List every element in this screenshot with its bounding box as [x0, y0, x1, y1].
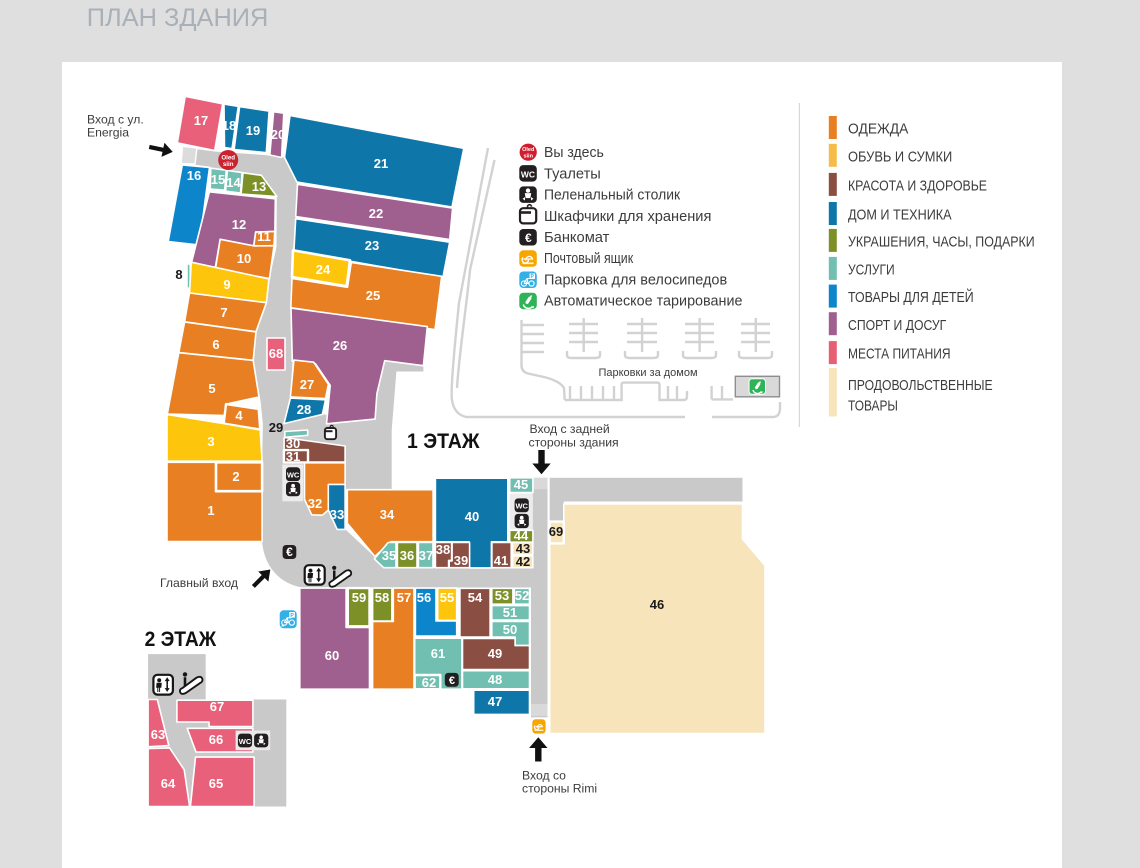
svg-text:66: 66	[209, 732, 223, 747]
svg-text:65: 65	[209, 776, 223, 791]
svg-text:34: 34	[380, 507, 395, 522]
svg-text:41: 41	[494, 553, 508, 568]
svg-text:ДОМ И ТЕХНИКА: ДОМ И ТЕХНИКА	[848, 207, 952, 224]
svg-text:52: 52	[515, 588, 529, 603]
svg-text:68: 68	[269, 346, 283, 361]
svg-text:59: 59	[352, 590, 366, 605]
svg-text:ОБУВЬ И СУМКИ: ОБУВЬ И СУМКИ	[848, 148, 952, 165]
svg-text:28: 28	[297, 402, 311, 417]
svg-text:69: 69	[549, 524, 563, 539]
svg-text:20: 20	[271, 127, 285, 142]
svg-text:€: €	[286, 545, 293, 559]
svg-text:60: 60	[325, 648, 339, 663]
svg-text:48: 48	[488, 672, 502, 687]
svg-text:УКРАШЕНИЯ, ЧАСЫ, ПОДАРКИ: УКРАШЕНИЯ, ЧАСЫ, ПОДАРКИ	[848, 234, 1035, 251]
svg-text:23: 23	[365, 238, 379, 253]
svg-text:7: 7	[220, 305, 227, 320]
svg-text:siin: siin	[523, 153, 533, 159]
svg-text:стороны Rimi: стороны Rimi	[522, 782, 597, 796]
svg-text:siin: siin	[223, 161, 234, 168]
svg-text:Шкафчики для хранения: Шкафчики для хранения	[544, 208, 711, 225]
svg-text:27: 27	[300, 377, 314, 392]
svg-text:Вы здесь: Вы здесь	[544, 144, 604, 161]
svg-text:МЕСТА ПИТАНИЯ: МЕСТА ПИТАНИЯ	[848, 346, 951, 363]
svg-text:WC: WC	[287, 471, 300, 480]
svg-text:25: 25	[366, 288, 380, 303]
svg-text:54: 54	[468, 590, 483, 605]
svg-text:Oled: Oled	[522, 147, 534, 153]
svg-text:14: 14	[226, 175, 241, 190]
svg-text:42: 42	[516, 554, 530, 569]
svg-text:18: 18	[222, 118, 236, 133]
svg-text:45: 45	[514, 477, 528, 492]
svg-text:€: €	[525, 231, 532, 245]
svg-text:33: 33	[330, 507, 344, 522]
svg-text:1 ЭТАЖ: 1 ЭТАЖ	[407, 430, 480, 453]
svg-text:6: 6	[212, 337, 219, 352]
svg-text:ТОВАРЫ ДЛЯ ДЕТЕЙ: ТОВАРЫ ДЛЯ ДЕТЕЙ	[848, 288, 974, 306]
svg-text:19: 19	[246, 123, 260, 138]
svg-text:Вход со: Вход со	[522, 769, 566, 783]
svg-text:43: 43	[516, 541, 530, 556]
svg-text:37: 37	[419, 548, 433, 563]
svg-text:Почтовый ящик: Почтовый ящик	[544, 250, 633, 267]
svg-text:17: 17	[194, 113, 208, 128]
svg-text:УСЛУГИ: УСЛУГИ	[848, 262, 895, 279]
svg-text:12: 12	[232, 217, 246, 232]
svg-text:Парковка для велосипедов: Парковка для велосипедов	[544, 271, 727, 288]
svg-text:WC: WC	[521, 170, 535, 180]
svg-text:4: 4	[235, 408, 243, 423]
svg-text:63: 63	[151, 727, 165, 742]
svg-text:55: 55	[440, 590, 454, 605]
svg-text:ТОВАРЫ: ТОВАРЫ	[848, 398, 898, 415]
svg-text:56: 56	[417, 590, 431, 605]
svg-text:2 ЭТАЖ: 2 ЭТАЖ	[145, 628, 217, 651]
svg-text:11: 11	[257, 229, 271, 244]
svg-text:31: 31	[286, 449, 300, 464]
svg-text:КРАСОТА И ЗДОРОВЬЕ: КРАСОТА И ЗДОРОВЬЕ	[848, 178, 987, 195]
svg-text:Банкомат: Банкомат	[544, 229, 610, 246]
svg-text:46: 46	[650, 597, 664, 612]
svg-text:32: 32	[308, 496, 322, 511]
svg-text:5: 5	[208, 381, 215, 396]
svg-text:35: 35	[382, 548, 396, 563]
svg-text:Пеленальный столик: Пеленальный столик	[544, 187, 681, 204]
svg-text:29: 29	[269, 420, 283, 435]
svg-text:3: 3	[207, 434, 214, 449]
svg-text:39: 39	[454, 553, 468, 568]
svg-text:15: 15	[211, 172, 225, 187]
svg-text:10: 10	[237, 251, 251, 266]
svg-text:53: 53	[495, 588, 509, 603]
svg-text:40: 40	[465, 509, 479, 524]
svg-text:16: 16	[187, 168, 201, 183]
svg-text:8: 8	[175, 267, 182, 282]
svg-text:50: 50	[503, 622, 517, 637]
svg-text:Автоматическое тарирование: Автоматическое тарирование	[544, 293, 743, 310]
svg-text:21: 21	[374, 156, 388, 171]
svg-text:2: 2	[232, 469, 239, 484]
svg-text:67: 67	[210, 699, 224, 714]
svg-text:38: 38	[436, 542, 450, 557]
svg-text:36: 36	[400, 548, 414, 563]
svg-text:Energia: Energia	[87, 126, 129, 140]
svg-text:ПЛАН ЗДАНИЯ: ПЛАН ЗДАНИЯ	[87, 4, 269, 32]
svg-text:СПОРТ И ДОСУГ: СПОРТ И ДОСУГ	[848, 317, 946, 334]
svg-text:WC: WC	[515, 502, 528, 511]
svg-text:Главный вход: Главный вход	[160, 576, 238, 590]
svg-text:58: 58	[375, 590, 389, 605]
svg-text:61: 61	[431, 646, 445, 661]
svg-text:47: 47	[488, 694, 502, 709]
svg-text:ПРОДОВОЛЬСТВЕННЫЕ: ПРОДОВОЛЬСТВЕННЫЕ	[848, 377, 993, 394]
svg-text:57: 57	[397, 590, 411, 605]
svg-text:WC: WC	[239, 737, 252, 746]
svg-text:51: 51	[503, 605, 517, 620]
svg-text:Парковки за домом: Парковки за домом	[598, 367, 697, 379]
svg-text:49: 49	[488, 646, 502, 661]
svg-text:ОДЕЖДА: ОДЕЖДА	[848, 121, 908, 138]
svg-text:26: 26	[333, 338, 347, 353]
svg-text:62: 62	[422, 675, 436, 690]
svg-text:1: 1	[207, 503, 214, 518]
svg-text:9: 9	[223, 277, 230, 292]
svg-text:стороны здания: стороны здания	[529, 436, 619, 450]
svg-text:24: 24	[316, 262, 331, 277]
svg-text:13: 13	[252, 179, 266, 194]
svg-text:Туалеты: Туалеты	[544, 165, 601, 182]
svg-text:64: 64	[161, 776, 176, 791]
svg-text:44: 44	[514, 528, 529, 543]
svg-text:€: €	[449, 675, 455, 687]
svg-text:22: 22	[369, 206, 383, 221]
svg-text:Вход с задней: Вход с задней	[530, 422, 610, 436]
